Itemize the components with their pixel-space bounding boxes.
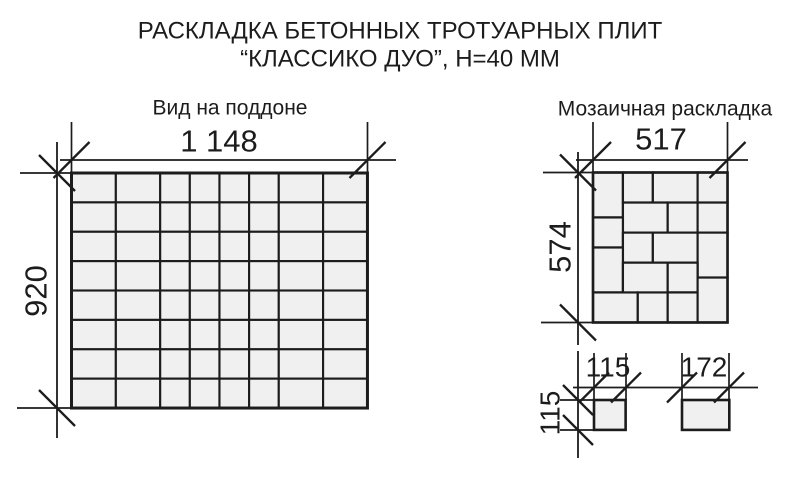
pallet-tile: [249, 232, 279, 261]
mosaic-tile: [593, 217, 623, 247]
pallet-tile: [219, 320, 249, 349]
pallet-tile: [160, 349, 190, 378]
pallet-tile-grid: [72, 173, 368, 408]
mosaic-tile: [623, 233, 653, 263]
pallet-tile: [190, 291, 220, 320]
mosaic-height-value: 574: [543, 221, 578, 273]
mosaic-tile: [668, 203, 698, 233]
pallet-tile: [190, 320, 220, 349]
mosaic-tile: [668, 263, 698, 293]
pallet-tile: [190, 232, 220, 261]
mosaic-tile: [638, 292, 668, 322]
pallet-tile: [279, 320, 323, 349]
mosaic-view-label: Мозаичная раскладка: [558, 98, 773, 121]
pallet-tile: [72, 291, 116, 320]
pallet-tile: [323, 349, 367, 378]
pallet-tile: [160, 379, 190, 408]
mosaic-tile: [653, 173, 698, 203]
pallet-tile: [160, 232, 190, 261]
sample-tile-rect: [682, 400, 729, 430]
pallet-tile: [160, 261, 190, 290]
pallet-tile: [279, 291, 323, 320]
pallet-tile: [72, 320, 116, 349]
drawing-title-line2: “КЛАССИКО ДУО”, Н=40 ММ: [240, 46, 560, 73]
pallet-tile: [219, 379, 249, 408]
pallet-tile: [160, 291, 190, 320]
pallet-tile: [72, 173, 116, 202]
pallet-tile: [219, 202, 249, 231]
mosaic-width-value: 517: [635, 122, 687, 157]
pallet-tile: [279, 349, 323, 378]
mosaic-tile: [623, 173, 653, 203]
pallet-tile: [72, 261, 116, 290]
pallet-width-value: 1 148: [180, 124, 258, 159]
pallet-tile: [323, 173, 367, 202]
pallet-tile: [219, 291, 249, 320]
mosaic-tile: [593, 292, 638, 322]
drawing-title-line1: РАСКЛАДКА БЕТОННЫХ ТРОТУАРНЫХ ПЛИТ: [138, 18, 663, 45]
pallet-height-value: 920: [19, 265, 54, 317]
drawing-page: РАСКЛАДКА БЕТОННЫХ ТРОТУАРНЫХ ПЛИТ “КЛАС…: [0, 0, 800, 496]
pallet-tile: [190, 173, 220, 202]
pallet-tile: [116, 379, 160, 408]
sample-square-width-value: 115: [586, 352, 631, 383]
pallet-tile: [160, 173, 190, 202]
pallet-tile: [323, 202, 367, 231]
pallet-tile: [72, 202, 116, 231]
pallet-tile: [160, 320, 190, 349]
mosaic-tile: [668, 292, 698, 322]
pallet-tile: [116, 291, 160, 320]
mosaic-tile: [698, 203, 728, 233]
pallet-tile: [249, 261, 279, 290]
pallet-tile: [219, 232, 249, 261]
mosaic-tile: [623, 203, 668, 233]
pallet-tile: [279, 261, 323, 290]
pallet-tile: [279, 202, 323, 231]
pallet-tile: [219, 261, 249, 290]
pallet-tile: [323, 261, 367, 290]
pallet-tile: [160, 202, 190, 231]
pallet-tile: [72, 349, 116, 378]
mosaic-tile-layout: [593, 173, 728, 323]
pallet-tile: [116, 349, 160, 378]
pallet-view-label: Вид на поддоне: [153, 97, 308, 120]
pallet-tile: [249, 349, 279, 378]
pallet-tile: [219, 173, 249, 202]
sample-square-height-value: 115: [535, 391, 566, 436]
pallet-tile: [190, 349, 220, 378]
mosaic-tile: [698, 233, 728, 278]
mosaic-tile: [698, 173, 728, 203]
pallet-tile: [249, 320, 279, 349]
pallet-tile: [219, 349, 249, 378]
mosaic-tile: [653, 233, 698, 263]
pallet-tile: [323, 379, 367, 408]
mosaic-tile: [593, 247, 623, 292]
pallet-tile: [323, 320, 367, 349]
pallet-tile: [116, 261, 160, 290]
pallet-tile: [323, 291, 367, 320]
pallet-tile: [190, 202, 220, 231]
pallet-tile: [190, 379, 220, 408]
sample-rect-width-value: 172: [681, 352, 728, 383]
pallet-tile: [116, 202, 160, 231]
pallet-tile: [279, 232, 323, 261]
pallet-tile: [249, 173, 279, 202]
mosaic-tile: [593, 173, 623, 218]
sample-tile-square: [594, 400, 626, 430]
pallet-tile: [249, 379, 279, 408]
pallet-tile: [249, 291, 279, 320]
pallet-tile: [116, 320, 160, 349]
pallet-tile: [279, 173, 323, 202]
mosaic-tile: [698, 278, 728, 323]
pallet-tile: [279, 379, 323, 408]
pallet-tile: [249, 202, 279, 231]
sample-tiles: [594, 400, 729, 430]
drawing-canvas: РАСКЛАДКА БЕТОННЫХ ТРОТУАРНЫХ ПЛИТ “КЛАС…: [0, 0, 800, 496]
pallet-tile: [72, 232, 116, 261]
mosaic-tile: [623, 263, 668, 293]
pallet-tile: [72, 379, 116, 408]
pallet-tile: [116, 173, 160, 202]
pallet-tile: [116, 232, 160, 261]
pallet-tile: [323, 232, 367, 261]
pallet-tile: [190, 261, 220, 290]
